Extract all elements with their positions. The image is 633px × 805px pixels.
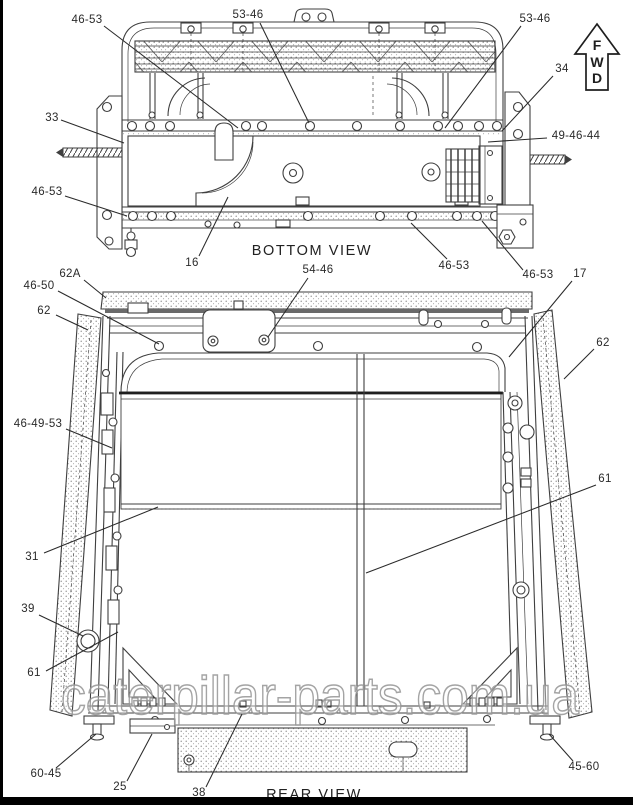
radiator-core bbox=[121, 392, 501, 509]
left-border bbox=[0, 0, 3, 805]
callout-label: 62A bbox=[59, 268, 80, 280]
callout-label: 53-46 bbox=[233, 9, 264, 21]
callout-label: 34 bbox=[555, 63, 569, 75]
fwd-letter-d: D bbox=[592, 70, 602, 86]
slot bbox=[215, 123, 233, 160]
left-mount-plate bbox=[97, 96, 122, 249]
fwd-letter-w: W bbox=[590, 54, 604, 70]
callout-label: 49-46-44 bbox=[552, 130, 601, 142]
callout-rear_view-31: 31 bbox=[25, 507, 158, 563]
callout-leader-line bbox=[549, 734, 573, 761]
callout-label: 46-53 bbox=[439, 260, 470, 272]
callout-label: 61 bbox=[598, 473, 611, 485]
bottom-view-drawing bbox=[56, 9, 572, 257]
callout-label: 39 bbox=[21, 603, 34, 615]
callout-label: 45-60 bbox=[569, 761, 600, 773]
bottom-border bbox=[0, 797, 633, 805]
drain-fitting bbox=[125, 228, 137, 257]
top-rail-bar bbox=[101, 292, 532, 309]
callout-bottom_view-46-53: 46-53 bbox=[411, 223, 469, 272]
right-pin bbox=[530, 155, 572, 164]
watermark-text: caterpillar-parts.com.ua bbox=[61, 666, 580, 726]
callout-label: 53-46 bbox=[520, 13, 551, 25]
callout-leader-line bbox=[84, 280, 106, 298]
callout-label: 61 bbox=[27, 667, 40, 679]
right-lower-bracket bbox=[497, 205, 533, 248]
left-pin bbox=[56, 148, 122, 157]
callout-label: 17 bbox=[573, 268, 586, 280]
callout-label: 25 bbox=[113, 781, 126, 793]
callout-rear_view-60-45: 60-45 bbox=[31, 734, 96, 780]
bottom-guard-plate bbox=[178, 728, 467, 772]
callout-label: 46-53 bbox=[32, 186, 63, 198]
callout-label: 62 bbox=[37, 305, 50, 317]
callout-label: 46-53 bbox=[72, 14, 103, 26]
callout-label: 46-50 bbox=[24, 280, 55, 292]
callout-label: 46-49-53 bbox=[14, 418, 62, 430]
right-side-channel bbox=[534, 310, 592, 718]
callout-leader-line bbox=[44, 507, 158, 553]
callout-label: 31 bbox=[25, 551, 38, 563]
left-side-channel bbox=[50, 314, 101, 716]
diagram-canvas: F W D caterpillar-parts.com.ua BOTTOM VI… bbox=[0, 0, 633, 805]
callout-label: 16 bbox=[185, 257, 198, 269]
callout-label: 33 bbox=[45, 112, 58, 124]
callout-rear_view-25: 25 bbox=[113, 734, 152, 793]
callout-leader-line bbox=[127, 734, 152, 781]
callout-label: 54-46 bbox=[303, 264, 334, 276]
plate-slot bbox=[389, 742, 417, 757]
callout-label: 62 bbox=[596, 337, 609, 349]
lifting-bracket bbox=[294, 9, 334, 22]
callout-label: 46-53 bbox=[523, 269, 554, 281]
parts-diagram-page: F W D caterpillar-parts.com.ua BOTTOM VI… bbox=[0, 0, 633, 805]
fwd-arrow-icon: F W D bbox=[575, 24, 619, 90]
callout-rear_view-62: 62 bbox=[564, 337, 610, 379]
left-column-hinges bbox=[101, 393, 122, 624]
callout-leader-line bbox=[564, 349, 594, 379]
callout-rear_view-62A: 62A bbox=[59, 268, 106, 298]
callout-rear_view-45-60: 45-60 bbox=[549, 734, 599, 773]
callout-rear_view-46-49-53: 46-49-53 bbox=[14, 418, 112, 448]
bottom-view-title: BOTTOM VIEW bbox=[252, 243, 372, 259]
callout-label: 60-45 bbox=[31, 768, 62, 780]
callout-leader-line bbox=[56, 734, 96, 768]
fwd-letter-f: F bbox=[593, 37, 602, 53]
